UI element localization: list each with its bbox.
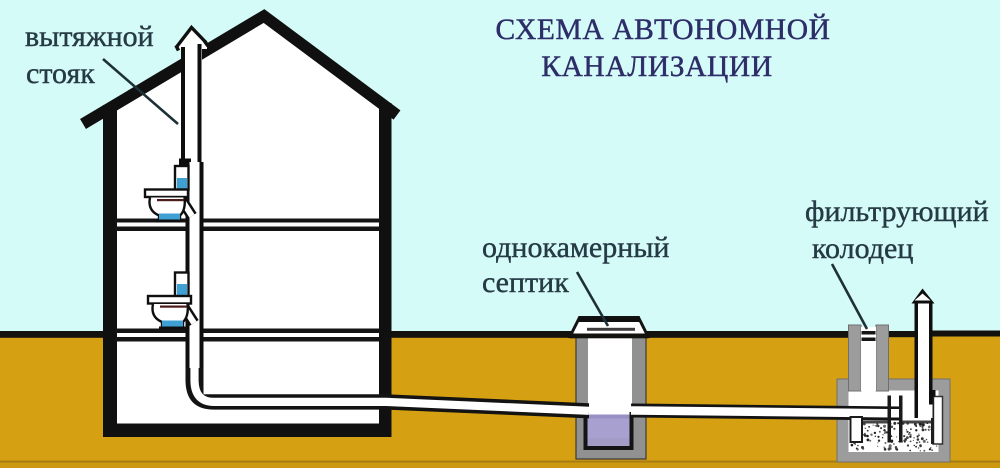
svg-text:однокамерный: однокамерный [482, 231, 669, 264]
svg-text:фильтрующий: фильтрующий [805, 195, 989, 228]
svg-text:СХЕМА АВТОНОМНОЙ: СХЕМА АВТОНОМНОЙ [495, 14, 830, 46]
svg-text:КАНАЛИЗАЦИИ: КАНАЛИЗАЦИИ [541, 51, 773, 83]
svg-text:вытяжной: вытяжной [25, 20, 154, 53]
svg-text:стояк: стояк [26, 57, 95, 90]
svg-text:колодец: колодец [812, 232, 913, 265]
svg-text:септик: септик [482, 266, 569, 299]
